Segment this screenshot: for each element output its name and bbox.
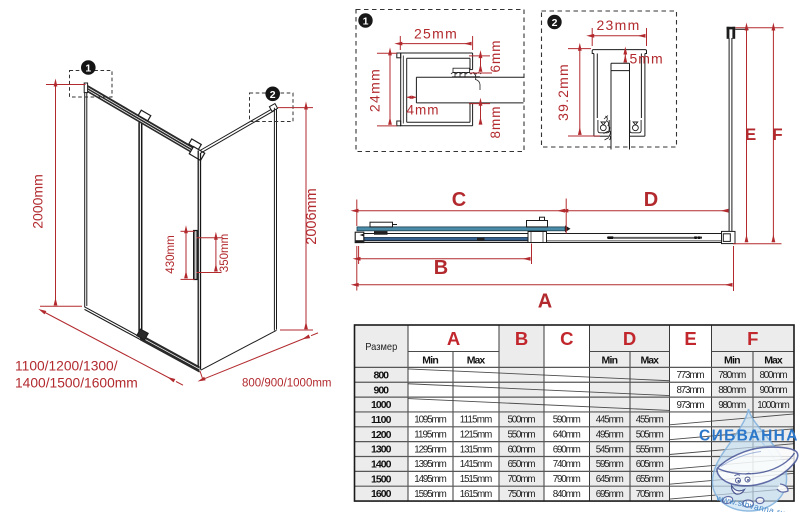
- svg-text:1300: 1300: [371, 444, 392, 456]
- svg-text:Max: Max: [641, 355, 660, 367]
- svg-text:773mm: 773mm: [677, 370, 705, 381]
- svg-text:445mm: 445mm: [596, 415, 624, 426]
- svg-text:1100/1200/1300/: 1100/1200/1300/: [15, 359, 118, 374]
- svg-text:1000mm: 1000mm: [757, 400, 790, 411]
- svg-text:39.2mm: 39.2mm: [555, 63, 571, 121]
- svg-text:Max: Max: [764, 355, 783, 367]
- svg-text:800mm: 800mm: [760, 370, 788, 381]
- svg-text:973mm: 973mm: [677, 400, 705, 411]
- svg-text:655mm: 655mm: [636, 474, 664, 485]
- svg-text:430mm: 430mm: [165, 235, 177, 273]
- svg-text:1000: 1000: [371, 399, 392, 411]
- svg-text:500mm: 500mm: [508, 415, 536, 426]
- svg-text:350mm: 350mm: [219, 234, 231, 272]
- svg-text:1595mm: 1595mm: [414, 489, 447, 500]
- svg-text:1415mm: 1415mm: [460, 459, 493, 470]
- svg-text:900mm: 900mm: [760, 385, 788, 396]
- svg-text:700mm: 700mm: [508, 474, 536, 485]
- svg-text:690mm: 690mm: [553, 444, 581, 455]
- svg-text:1395mm: 1395mm: [414, 459, 447, 470]
- svg-text:B: B: [434, 257, 448, 279]
- svg-text:A: A: [447, 328, 460, 349]
- svg-text:5mm: 5mm: [630, 51, 664, 67]
- svg-text:4mm: 4mm: [407, 103, 440, 118]
- svg-text:СИБВАННА: СИБВАННА: [699, 428, 799, 445]
- svg-text:Max: Max: [467, 355, 486, 367]
- svg-text:880mm: 880mm: [718, 385, 746, 396]
- svg-text:Min: Min: [724, 355, 741, 367]
- svg-text:8mm: 8mm: [488, 106, 503, 139]
- svg-text:800: 800: [374, 369, 390, 381]
- svg-text:1: 1: [85, 63, 91, 75]
- svg-text:25mm: 25mm: [414, 26, 458, 42]
- svg-text:Размер: Размер: [365, 341, 397, 353]
- svg-text:900: 900: [374, 384, 390, 396]
- svg-text:F: F: [747, 328, 758, 349]
- svg-text:1515mm: 1515mm: [460, 474, 493, 485]
- svg-text:495mm: 495mm: [596, 430, 624, 441]
- svg-text:1215mm: 1215mm: [460, 430, 493, 441]
- svg-text:2006mm: 2006mm: [304, 188, 320, 244]
- svg-text:Min: Min: [422, 355, 439, 367]
- svg-text:1: 1: [363, 16, 369, 28]
- svg-text:24mm: 24mm: [367, 68, 383, 112]
- svg-text:2: 2: [552, 17, 558, 29]
- svg-text:6mm: 6mm: [488, 40, 503, 73]
- svg-text:980mm: 980mm: [718, 400, 746, 411]
- svg-text:555mm: 555mm: [636, 444, 664, 455]
- svg-text:D: D: [644, 189, 658, 211]
- svg-text:E: E: [684, 328, 696, 349]
- svg-text:1095mm: 1095mm: [414, 415, 447, 426]
- svg-text:705mm: 705mm: [636, 489, 664, 500]
- svg-text:1195mm: 1195mm: [414, 430, 447, 441]
- svg-text:645mm: 645mm: [596, 474, 624, 485]
- svg-text:A: A: [538, 291, 552, 313]
- svg-text:23mm: 23mm: [596, 17, 640, 33]
- svg-text:1615mm: 1615mm: [460, 489, 493, 500]
- svg-text:1500: 1500: [371, 473, 392, 485]
- svg-text:545mm: 545mm: [596, 444, 624, 455]
- svg-text:750mm: 750mm: [508, 489, 536, 500]
- svg-text:455mm: 455mm: [636, 415, 664, 426]
- svg-text:2: 2: [270, 89, 276, 101]
- svg-text:605mm: 605mm: [636, 459, 664, 470]
- svg-text:595mm: 595mm: [596, 459, 624, 470]
- svg-text:1600: 1600: [371, 488, 392, 500]
- svg-text:1495mm: 1495mm: [414, 474, 447, 485]
- svg-text:800/900/1000mm: 800/900/1000mm: [242, 378, 332, 390]
- svg-text:740mm: 740mm: [553, 459, 581, 470]
- svg-text:1400/1500/1600mm: 1400/1500/1600mm: [15, 376, 138, 391]
- svg-text:1315mm: 1315mm: [460, 444, 493, 455]
- svg-text:2000mm: 2000mm: [30, 174, 46, 228]
- svg-text:C: C: [560, 328, 573, 349]
- svg-text:590mm: 590mm: [553, 415, 581, 426]
- svg-text:790mm: 790mm: [553, 474, 581, 485]
- svg-text:1200: 1200: [371, 429, 392, 441]
- svg-text:1115mm: 1115mm: [460, 415, 493, 426]
- svg-text:505mm: 505mm: [636, 430, 664, 441]
- svg-text:B: B: [515, 328, 528, 349]
- svg-text:F: F: [772, 125, 782, 144]
- svg-text:1295mm: 1295mm: [414, 444, 447, 455]
- svg-text:Min: Min: [602, 355, 619, 367]
- svg-text:550mm: 550mm: [508, 430, 536, 441]
- svg-text:D: D: [623, 328, 636, 349]
- svg-text:640mm: 640mm: [553, 430, 581, 441]
- svg-text:873mm: 873mm: [677, 385, 705, 396]
- svg-text:650mm: 650mm: [508, 459, 536, 470]
- svg-text:840mm: 840mm: [553, 489, 581, 500]
- svg-text:E: E: [745, 125, 756, 144]
- svg-text:780mm: 780mm: [718, 370, 746, 381]
- svg-text:1100: 1100: [371, 414, 392, 426]
- svg-text:695mm: 695mm: [596, 489, 624, 500]
- svg-text:C: C: [452, 189, 466, 211]
- svg-text:1400: 1400: [371, 459, 392, 471]
- svg-text:600mm: 600mm: [508, 444, 536, 455]
